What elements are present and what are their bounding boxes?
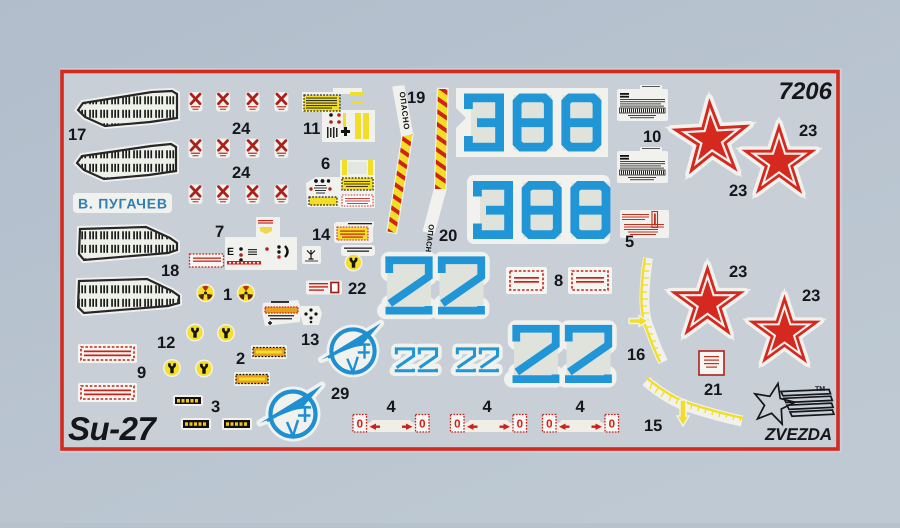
svg-text:17: 17 bbox=[68, 126, 86, 144]
svg-text:24: 24 bbox=[232, 120, 251, 138]
svg-text:21: 21 bbox=[704, 381, 722, 399]
svg-text:18: 18 bbox=[161, 262, 179, 280]
svg-text:ZVEZDA: ZVEZDA bbox=[764, 425, 832, 444]
svg-text:E: E bbox=[227, 246, 234, 258]
svg-text:4: 4 bbox=[576, 398, 586, 416]
svg-text:3: 3 bbox=[211, 398, 220, 416]
svg-text:4: 4 bbox=[483, 398, 493, 416]
svg-text:12: 12 bbox=[157, 334, 175, 352]
svg-text:22: 22 bbox=[348, 280, 366, 298]
svg-text:TM: TM bbox=[815, 386, 825, 393]
svg-text:15: 15 bbox=[644, 417, 662, 435]
svg-text:16: 16 bbox=[627, 346, 645, 364]
svg-text:23: 23 bbox=[802, 287, 820, 305]
svg-text:6: 6 bbox=[321, 155, 330, 173]
svg-text:23: 23 bbox=[799, 122, 817, 140]
svg-text:8: 8 bbox=[554, 272, 563, 290]
svg-text:29: 29 bbox=[331, 385, 349, 403]
svg-text:9: 9 bbox=[137, 364, 146, 382]
svg-text:20: 20 bbox=[439, 227, 457, 245]
svg-text:13: 13 bbox=[301, 331, 319, 349]
svg-text:7: 7 bbox=[215, 223, 224, 241]
svg-text:Su-27: Su-27 bbox=[68, 410, 158, 447]
svg-text:1: 1 bbox=[223, 286, 232, 304]
svg-text:2: 2 bbox=[236, 350, 245, 368]
svg-text:5: 5 bbox=[625, 233, 634, 251]
svg-text:4: 4 bbox=[387, 398, 397, 416]
svg-text:В. ПУГАЧЕВ: В. ПУГАЧЕВ bbox=[78, 196, 167, 212]
svg-text:19: 19 bbox=[407, 89, 425, 107]
svg-text:10: 10 bbox=[643, 128, 661, 146]
svg-text:23: 23 bbox=[729, 263, 747, 281]
svg-text:24: 24 bbox=[232, 164, 251, 182]
svg-text:11: 11 bbox=[303, 120, 320, 138]
svg-text:7206: 7206 bbox=[779, 78, 833, 105]
svg-text:14: 14 bbox=[312, 226, 331, 244]
svg-text:23: 23 bbox=[729, 182, 747, 200]
